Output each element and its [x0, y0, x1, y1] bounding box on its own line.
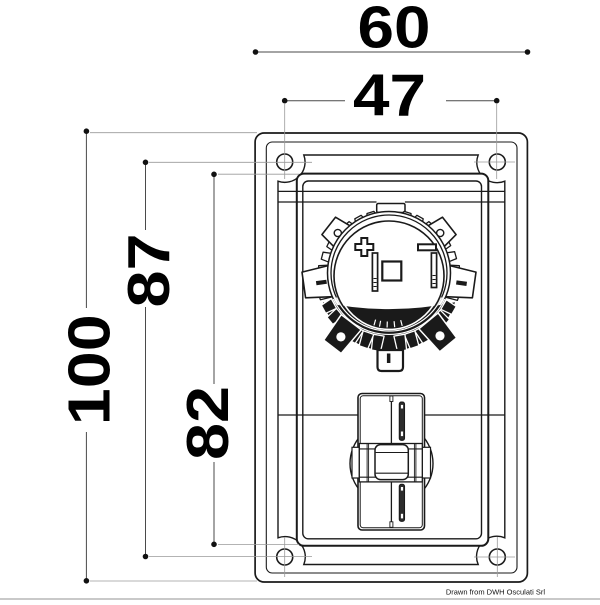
svg-text:60: 60 [358, 0, 431, 61]
svg-text:87: 87 [116, 234, 182, 308]
svg-text:Drawn from DWH Osculati Srl: Drawn from DWH Osculati Srl [446, 588, 546, 597]
svg-text:47: 47 [353, 63, 426, 129]
svg-text:82: 82 [175, 386, 241, 460]
svg-text:100: 100 [57, 314, 123, 425]
